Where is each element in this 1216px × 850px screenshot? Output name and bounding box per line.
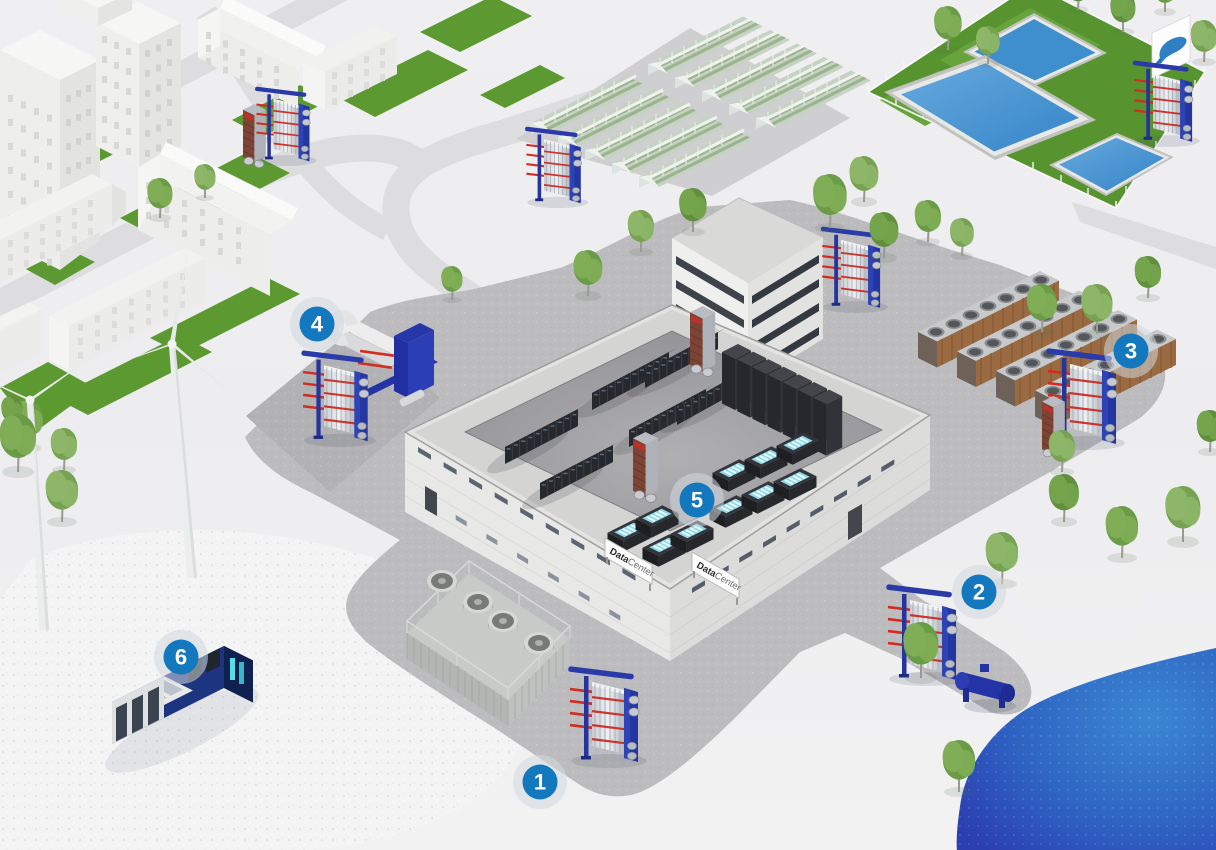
svg-text:4: 4 — [311, 312, 324, 337]
svg-text:3: 3 — [1125, 339, 1137, 364]
svg-text:2: 2 — [973, 580, 985, 605]
svg-text:6: 6 — [175, 645, 187, 670]
svg-text:1: 1 — [534, 770, 546, 795]
svg-text:5: 5 — [691, 488, 703, 513]
